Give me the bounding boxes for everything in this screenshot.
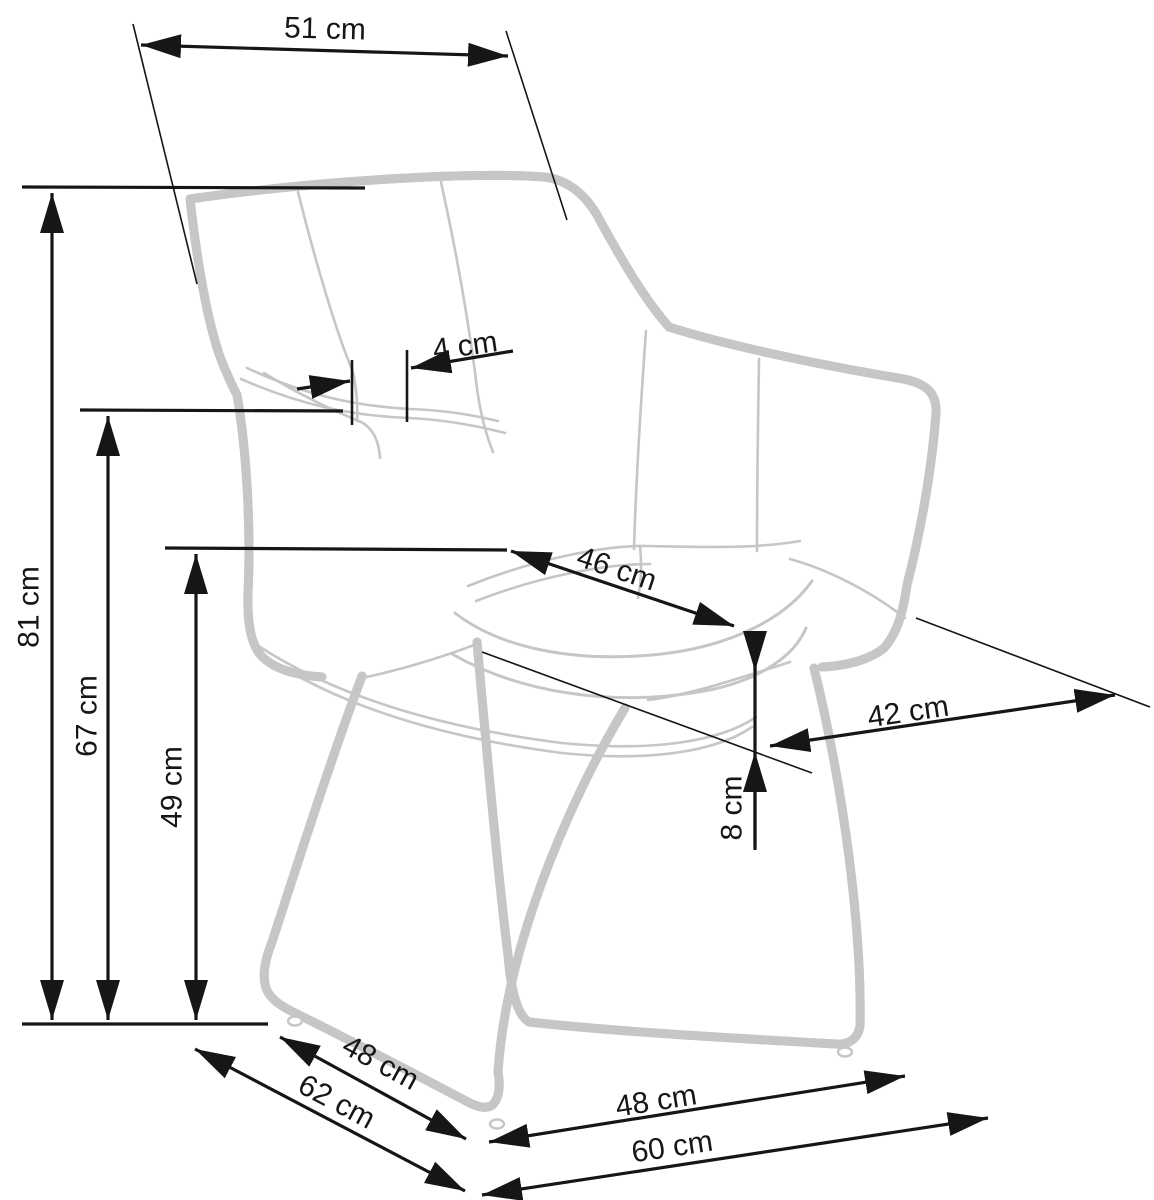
dimension-label-seat-width: 42 cm: [865, 690, 951, 735]
dimension-label-base-total-depth: 62 cm: [293, 1068, 381, 1135]
reference-line-armrest: [80, 410, 343, 411]
dimension-label-backrest-top-width: 51 cm: [284, 11, 367, 46]
seat-bottom-edge: [362, 644, 477, 678]
foot-glide: [490, 1120, 504, 1129]
dimension-label-armrest-thickness: 4 cm: [431, 325, 500, 367]
reference-line-seat: [165, 548, 507, 550]
left-armrest-outline: [190, 199, 322, 677]
dimension-label-base-side-depth: 48 cm: [337, 1029, 425, 1097]
dimension-arrow-51: [141, 45, 508, 56]
extension-line: [133, 24, 197, 284]
dimension-label-seat-height: 49 cm: [156, 746, 189, 828]
back-leg-frame: [477, 642, 860, 1044]
reference-line-top: [22, 187, 365, 188]
left-armrest-top-edge: [247, 368, 498, 421]
dimension-label-seat-depth: 46 cm: [573, 540, 661, 597]
diagram-canvas: 51 cm 81 cm 67 cm 49 cm 4 cm 46 cm 42 cm…: [0, 0, 1154, 1200]
dimension-label-cushion-thickness: 8 cm: [716, 775, 749, 840]
dimension-arrow-4-left: [297, 381, 350, 389]
backrest-seam: [757, 359, 759, 551]
extension-line: [506, 31, 567, 220]
dimension-label-armrest-height: 67 cm: [71, 675, 104, 757]
chair-dimension-diagram: 51 cm 81 cm 67 cm 49 cm 4 cm 46 cm 42 cm…: [0, 0, 1154, 1200]
foot-glide: [288, 1017, 302, 1026]
dimension-label-base-front-width: 48 cm: [613, 1078, 699, 1123]
chair-wireframe-drawing: [190, 175, 936, 1128]
dimension-label-total-height: 81 cm: [13, 566, 46, 648]
dimension-arrow-62: [195, 1049, 465, 1191]
foot-glide: [838, 1048, 852, 1057]
backrest-seam: [634, 331, 646, 549]
extension-line: [916, 618, 1150, 707]
front-leg-frame: [264, 676, 625, 1107]
backrest-outline: [190, 175, 669, 327]
